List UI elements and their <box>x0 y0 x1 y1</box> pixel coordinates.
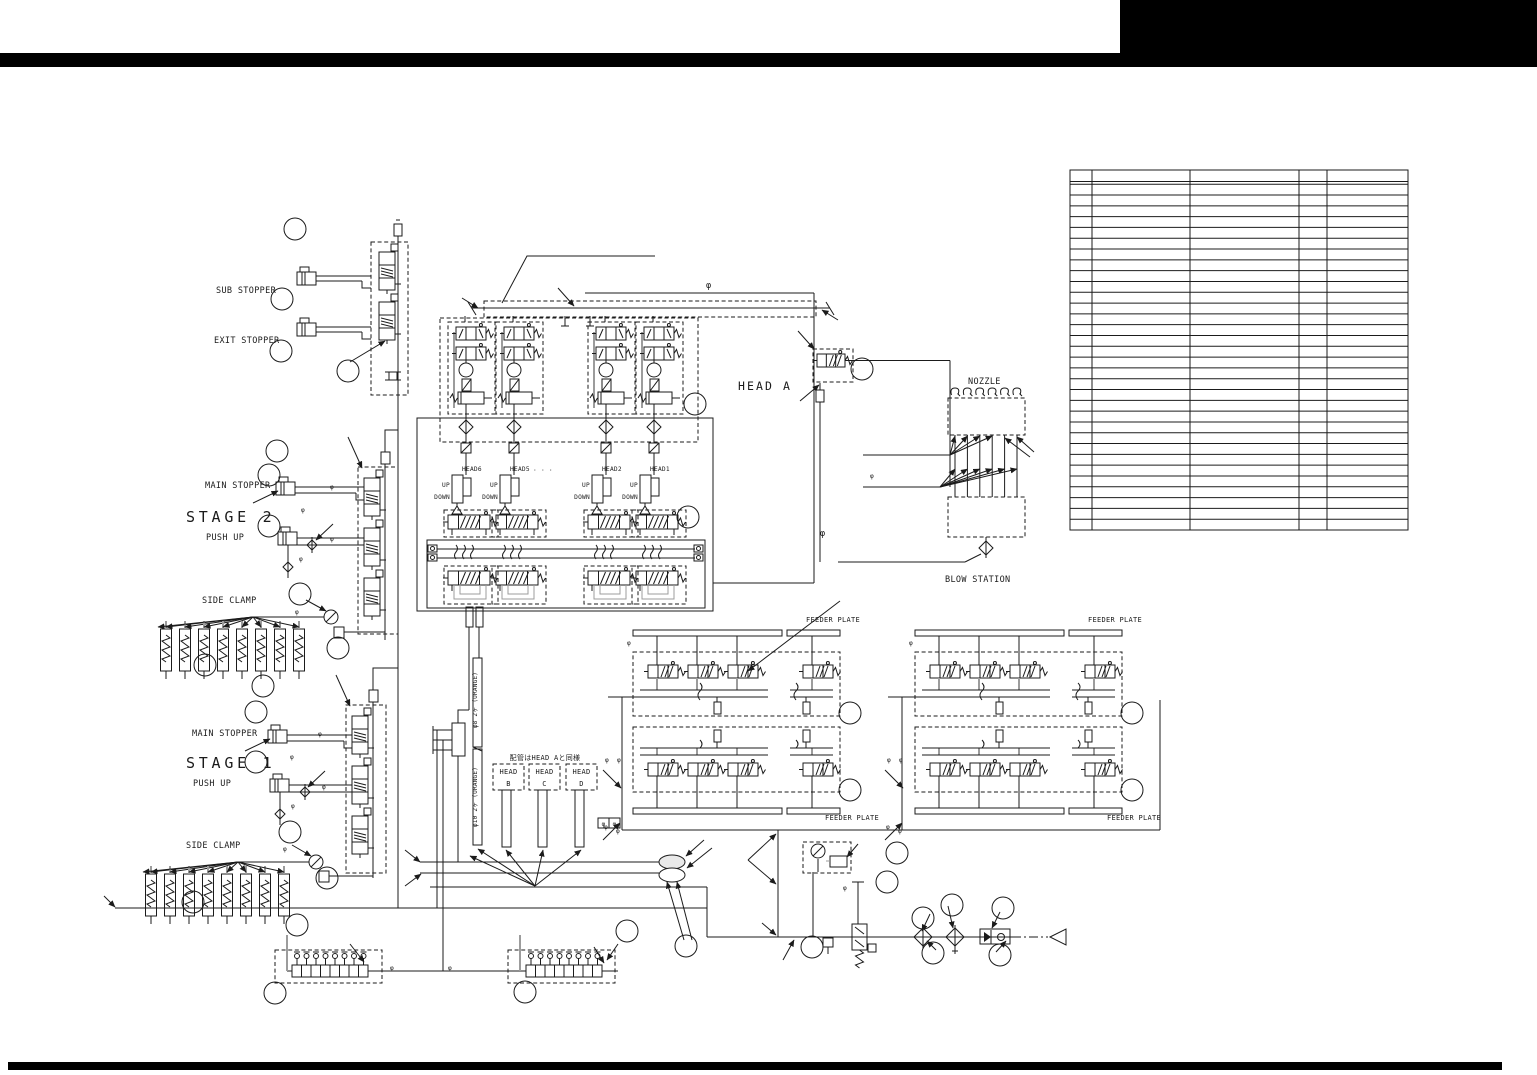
label-stage1: STAGE 1 <box>186 754 275 772</box>
label-head: HEAD <box>536 768 554 776</box>
balloon-callout <box>264 982 286 1004</box>
label-down: DOWN <box>434 494 450 501</box>
label-exit_stopper: EXIT STOPPER <box>214 336 280 346</box>
label-feeder_plate: FEEDER PLATE <box>806 616 860 624</box>
balloon-callout <box>684 393 706 415</box>
balloon-callout <box>839 779 861 801</box>
label-phi: φ <box>301 507 305 514</box>
label-letter_c: C <box>542 780 547 788</box>
balloon-callout <box>886 842 908 864</box>
label-side_clamp: SIDE CLAMP <box>202 596 257 606</box>
label-phi: φ <box>627 640 631 647</box>
balloon-callout <box>182 891 204 913</box>
label-down: DOWN <box>622 494 638 501</box>
label-dots: · · · <box>533 467 553 474</box>
label-phi: φ <box>390 965 394 972</box>
label-phi: φ <box>330 536 334 543</box>
balloon-callout <box>252 675 274 697</box>
label-head_a: HEAD A <box>738 379 792 393</box>
pneumatic-diagram: SUB STOPPEREXIT STOPPERφφHEAD AHEAD6UPDO… <box>0 0 1537 1075</box>
label-piping_note: 配管はHEAD Aと同様 <box>510 753 581 762</box>
label-up: UP <box>582 482 590 489</box>
balloon-callout <box>839 702 861 724</box>
balloon-callout <box>245 701 267 723</box>
balloon-callout <box>941 894 963 916</box>
label-phi: φ <box>613 821 617 828</box>
label-phi: φ <box>299 556 303 563</box>
label-push_up: PUSH UP <box>193 779 231 789</box>
balloon-callout <box>677 506 699 528</box>
balloon-callout <box>279 821 301 843</box>
label-phi: φ <box>870 473 874 480</box>
label-head: HEAD <box>573 768 591 776</box>
balloon-callout <box>286 914 308 936</box>
balloon-callout <box>327 637 349 659</box>
label-nozzle: NOZZLE <box>968 377 1001 387</box>
label-head1: HEAD1 <box>650 466 670 473</box>
label-pipe8: φ8 2ヶ (ORANGE) <box>472 672 479 728</box>
label-down: DOWN <box>482 494 498 501</box>
label-phi: φ <box>283 846 287 853</box>
balloon-callout <box>801 936 823 958</box>
schematic-sheet: SUB STOPPEREXIT STOPPERφφHEAD AHEAD6UPDO… <box>0 0 1537 1075</box>
balloon-callout <box>289 583 311 605</box>
label-phi: φ <box>322 784 326 791</box>
label-phi: φ <box>843 885 847 892</box>
label-feeder_plate: FEEDER PLATE <box>825 814 879 822</box>
label-phi: φ <box>605 757 609 764</box>
label-down: DOWN <box>574 494 590 501</box>
label-phi: φ <box>617 757 621 764</box>
title-corner-block <box>1120 0 1537 53</box>
label-blow_station: BLOW STATION <box>945 575 1011 585</box>
balloon-callout <box>514 981 536 1003</box>
label-head: HEAD <box>500 768 518 776</box>
label-phi: φ <box>602 821 606 828</box>
label-phi: φ <box>909 640 913 647</box>
label-phi: φ <box>706 281 711 291</box>
label-letter_b: B <box>506 780 511 788</box>
balloon-callout <box>266 440 288 462</box>
label-phi: φ <box>448 965 452 972</box>
balloon-callout <box>616 920 638 942</box>
label-phi: φ <box>291 803 295 810</box>
label-feeder_plate: FEEDER PLATE <box>1107 814 1161 822</box>
balloon-callout <box>876 871 898 893</box>
balloon-callout <box>271 288 293 310</box>
balloon-callout <box>284 218 306 240</box>
label-phi: φ <box>616 828 620 835</box>
label-phi: φ <box>330 484 334 491</box>
balloon-callout <box>992 897 1014 919</box>
label-main_stopper: MAIN STOPPER <box>192 729 258 739</box>
label-letter_d: D <box>579 780 584 788</box>
balloon-callout <box>270 340 292 362</box>
label-phi: φ <box>887 757 891 764</box>
balloon-callout <box>1121 702 1143 724</box>
balloon-callout <box>675 935 697 957</box>
label-sub_stopper: SUB STOPPER <box>216 286 277 296</box>
label-phi: φ <box>318 731 322 738</box>
balloon-callout <box>922 942 944 964</box>
balloon-callout <box>1121 779 1143 801</box>
label-push_up: PUSH UP <box>206 533 244 543</box>
label-head6: HEAD6 <box>462 466 482 473</box>
balloon-callout <box>337 360 359 382</box>
bottom-border-bar <box>8 1062 1502 1070</box>
label-up: UP <box>630 482 638 489</box>
label-up: UP <box>442 482 450 489</box>
label-side_clamp: SIDE CLAMP <box>186 841 241 851</box>
balloon-callout <box>851 358 873 380</box>
label-phi: φ <box>898 828 902 835</box>
top-border-bar <box>0 53 1537 67</box>
label-phi: φ <box>295 609 299 616</box>
label-feeder_plate: FEEDER PLATE <box>1088 616 1142 624</box>
label-head5: HEAD5 <box>510 466 530 473</box>
label-pipe10: φ10 2ヶ (ORANGE) <box>472 767 479 827</box>
label-phi: φ <box>290 754 294 761</box>
label-up: UP <box>490 482 498 489</box>
label-head2: HEAD2 <box>602 466 622 473</box>
label-phi: φ <box>820 529 825 539</box>
